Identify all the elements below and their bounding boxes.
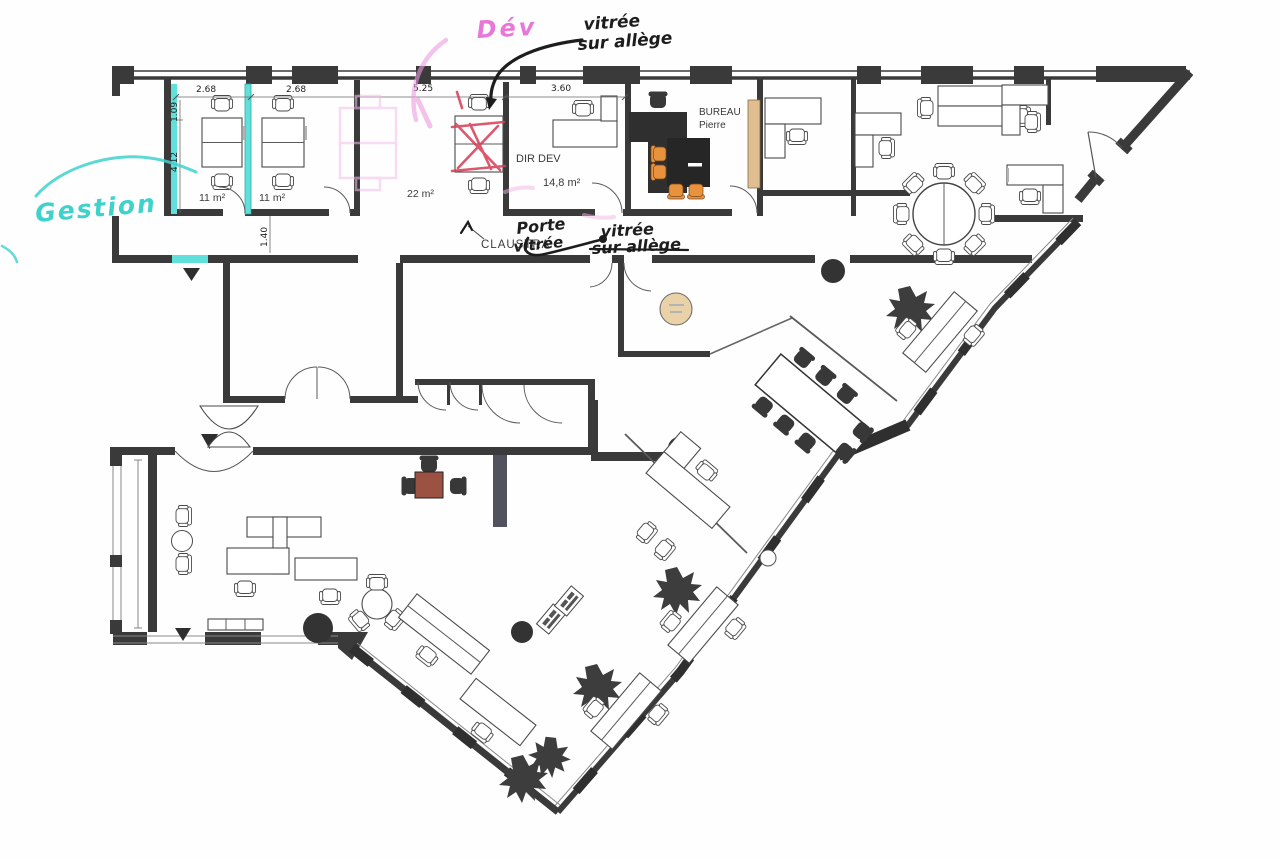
highlighted-wall-mid (245, 84, 251, 214)
meeting-table-small (667, 138, 710, 187)
annotation-gestion: Gestion (34, 188, 158, 228)
annotation-dev: Dév (476, 13, 538, 44)
column (821, 259, 845, 283)
round-side-table (660, 293, 692, 325)
column (511, 621, 533, 643)
dim-entry: 1.09 (170, 102, 180, 122)
meeting-room-table (743, 339, 886, 477)
entry-arrow-bottom (175, 628, 191, 641)
facade-piers (112, 66, 1186, 84)
diagonal-wing-furniture (386, 279, 993, 803)
entry-arrow-top (183, 268, 200, 281)
highlighted-entry-door (172, 255, 208, 263)
reception-desks (227, 517, 357, 580)
waiting-bench (208, 619, 263, 630)
label-dirdev: DIR DEV (516, 153, 561, 165)
dim-corridor: 1.40 (260, 227, 270, 247)
duct-pillar (493, 455, 507, 527)
label-office2: 11 m² (259, 192, 286, 204)
label-open-space: 22 m² (407, 188, 434, 200)
floor-plan-canvas: 2.68 2.68 5.25 3.60 1.09 4.12 1.40 11 m²… (0, 0, 1280, 859)
label-bureau: BUREAU (699, 107, 741, 118)
wood-cabinet (748, 100, 760, 188)
dim-office2: 2.68 (286, 85, 306, 95)
label-dirdev-area: 14,8 m² (543, 177, 581, 189)
floor-plan-scan: 2.68 2.68 5.25 3.60 1.09 4.12 1.40 11 m²… (0, 0, 1280, 859)
break-table (347, 575, 408, 634)
top-right-diagonal-wall (1078, 72, 1190, 200)
pink-sketch-table (340, 96, 396, 190)
column (303, 613, 333, 643)
label-office1: 11 m² (199, 192, 226, 204)
middle-band-walls (110, 259, 845, 527)
lower-left-furniture (172, 456, 584, 644)
label-bureau-occupant: Pierre (699, 120, 726, 131)
dim-dirdev: 3.60 (551, 84, 571, 94)
round-meeting-table (894, 164, 995, 265)
small-square-table (402, 456, 467, 499)
dim-office1: 2.68 (196, 85, 216, 95)
